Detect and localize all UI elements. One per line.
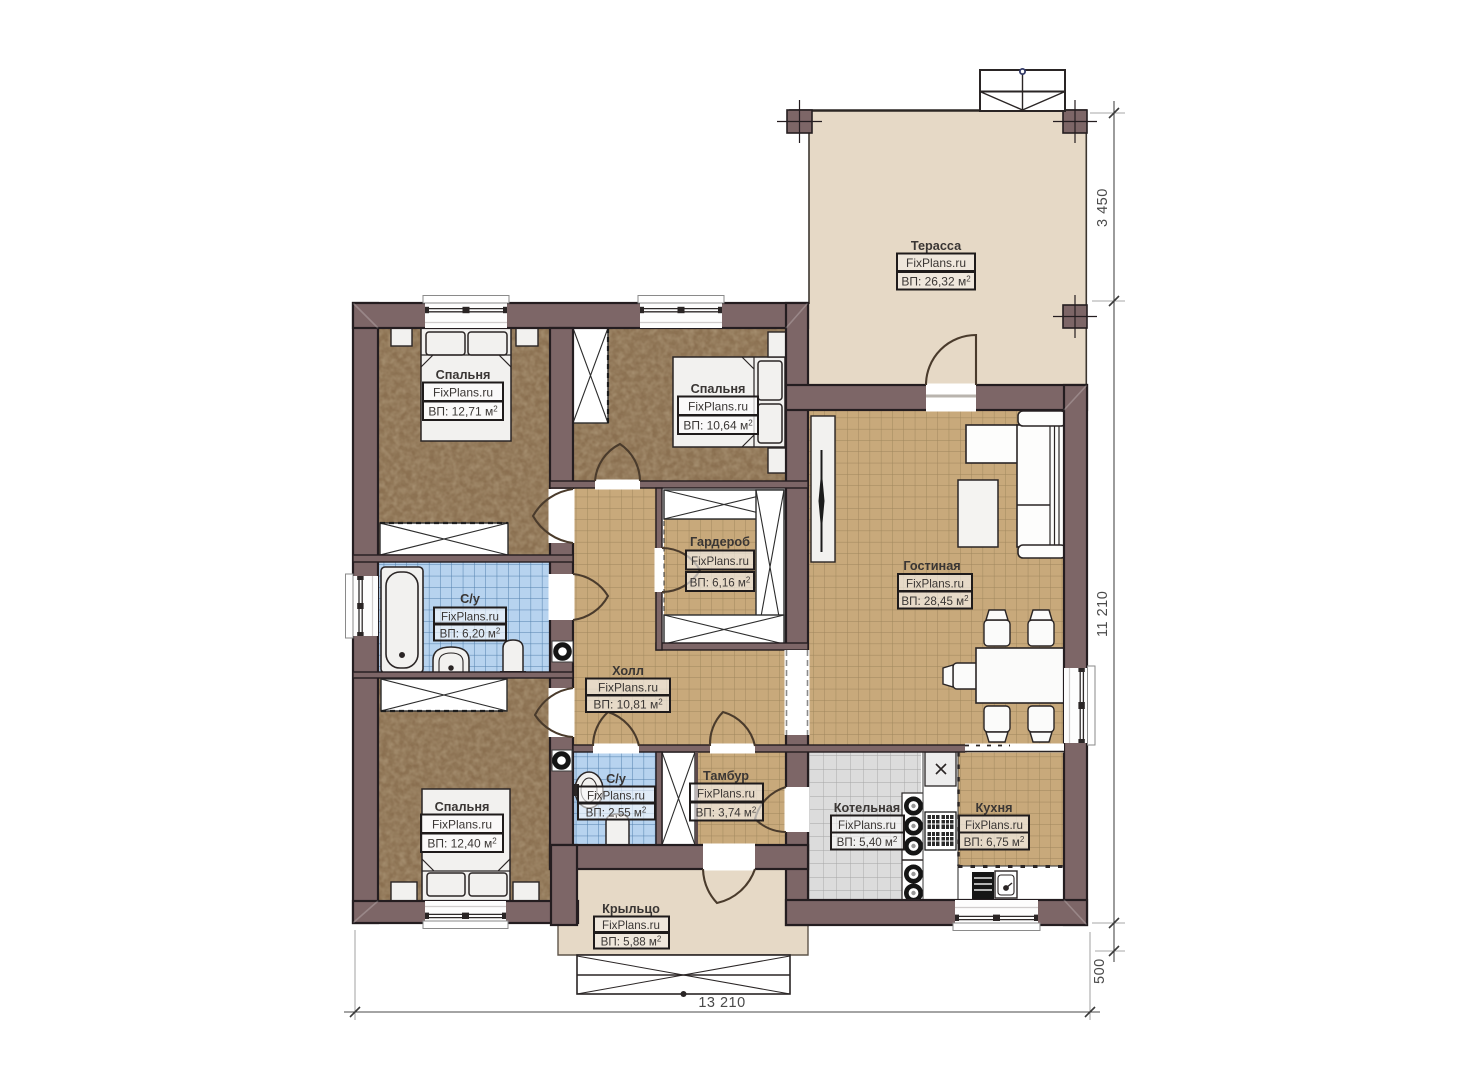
svg-text:ВП: 12,71 м2: ВП: 12,71 м2 <box>428 405 498 419</box>
svg-text:ВП: 5,40 м2: ВП: 5,40 м2 <box>837 835 898 849</box>
svg-text:ВП: 6,16 м2: ВП: 6,16 м2 <box>690 576 751 590</box>
svg-text:3 450: 3 450 <box>1095 188 1111 227</box>
svg-text:FixPlans.ru: FixPlans.ru <box>965 819 1023 832</box>
svg-text:ВП: 12,40 м2: ВП: 12,40 м2 <box>427 837 497 851</box>
svg-text:500: 500 <box>1092 958 1108 984</box>
svg-text:FixPlans.ru: FixPlans.ru <box>598 681 658 695</box>
svg-text:FixPlans.ru: FixPlans.ru <box>688 400 748 414</box>
svg-text:ВП: 28,45 м2: ВП: 28,45 м2 <box>901 594 969 608</box>
svg-text:ВП: 3,74 м2: ВП: 3,74 м2 <box>696 806 757 820</box>
svg-text:Спальня: Спальня <box>436 368 491 382</box>
svg-text:Котельная: Котельная <box>834 801 900 815</box>
svg-text:Тамбур: Тамбур <box>703 769 749 783</box>
svg-text:С/у: С/у <box>460 592 480 606</box>
svg-text:FixPlans.ru: FixPlans.ru <box>697 788 755 801</box>
svg-text:ВП: 2,55 м2: ВП: 2,55 м2 <box>586 806 647 820</box>
svg-text:Спальня: Спальня <box>691 382 746 396</box>
svg-text:Спальня: Спальня <box>435 800 490 814</box>
svg-text:13 210: 13 210 <box>698 995 745 1011</box>
svg-text:FixPlans.ru: FixPlans.ru <box>906 578 964 591</box>
svg-text:Кухня: Кухня <box>975 801 1012 815</box>
svg-text:С/у: С/у <box>606 772 626 786</box>
svg-text:FixPlans.ru: FixPlans.ru <box>587 790 645 803</box>
svg-text:Холл: Холл <box>612 664 644 678</box>
svg-text:Гардероб: Гардероб <box>690 535 750 549</box>
svg-text:FixPlans.ru: FixPlans.ru <box>838 819 896 832</box>
svg-text:ВП: 10,64 м2: ВП: 10,64 м2 <box>683 419 753 433</box>
svg-text:FixPlans.ru: FixPlans.ru <box>602 919 660 932</box>
svg-text:ВП: 26,32 м2: ВП: 26,32 м2 <box>901 275 971 289</box>
svg-text:FixPlans.ru: FixPlans.ru <box>441 611 499 624</box>
svg-text:FixPlans.ru: FixPlans.ru <box>432 818 492 832</box>
svg-text:Терасса: Терасса <box>911 239 962 253</box>
svg-text:Крыльцо: Крыльцо <box>602 902 660 916</box>
svg-text:ВП: 5,88 м2: ВП: 5,88 м2 <box>601 935 662 949</box>
svg-text:ВП: 6,75 м2: ВП: 6,75 м2 <box>964 835 1025 849</box>
svg-text:FixPlans.ru: FixPlans.ru <box>433 386 493 400</box>
svg-text:FixPlans.ru: FixPlans.ru <box>906 256 966 270</box>
svg-text:Гостиная: Гостиная <box>903 559 960 573</box>
svg-text:ВП: 6,20 м2: ВП: 6,20 м2 <box>440 627 501 641</box>
svg-text:FixPlans.ru: FixPlans.ru <box>691 555 749 568</box>
svg-text:ВП: 10,81 м2: ВП: 10,81 м2 <box>593 698 663 712</box>
svg-text:11 210: 11 210 <box>1095 591 1111 637</box>
